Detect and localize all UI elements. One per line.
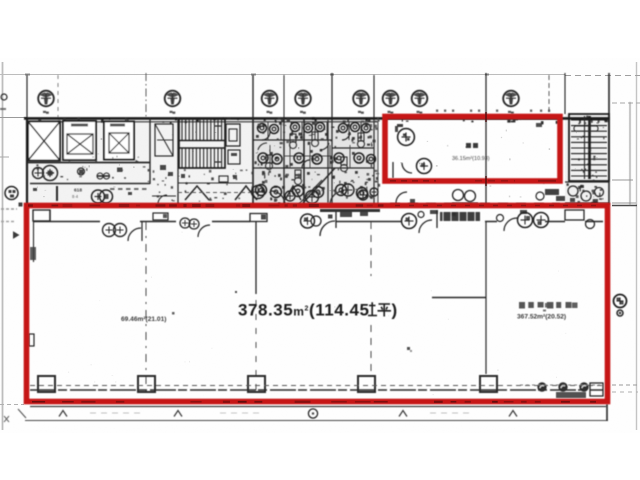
svg-text:618: 618 <box>74 188 82 194</box>
svg-text:8·4: 8·4 <box>72 194 79 199</box>
svg-text:367.52m²(20.52): 367.52m²(20.52) <box>517 314 566 321</box>
svg-text:69.46m²(21.01): 69.46m²(21.01) <box>121 316 166 323</box>
svg-text:36.15m²(10.93): 36.15m²(10.93) <box>452 156 490 162</box>
svg-text:): ) <box>392 301 398 320</box>
